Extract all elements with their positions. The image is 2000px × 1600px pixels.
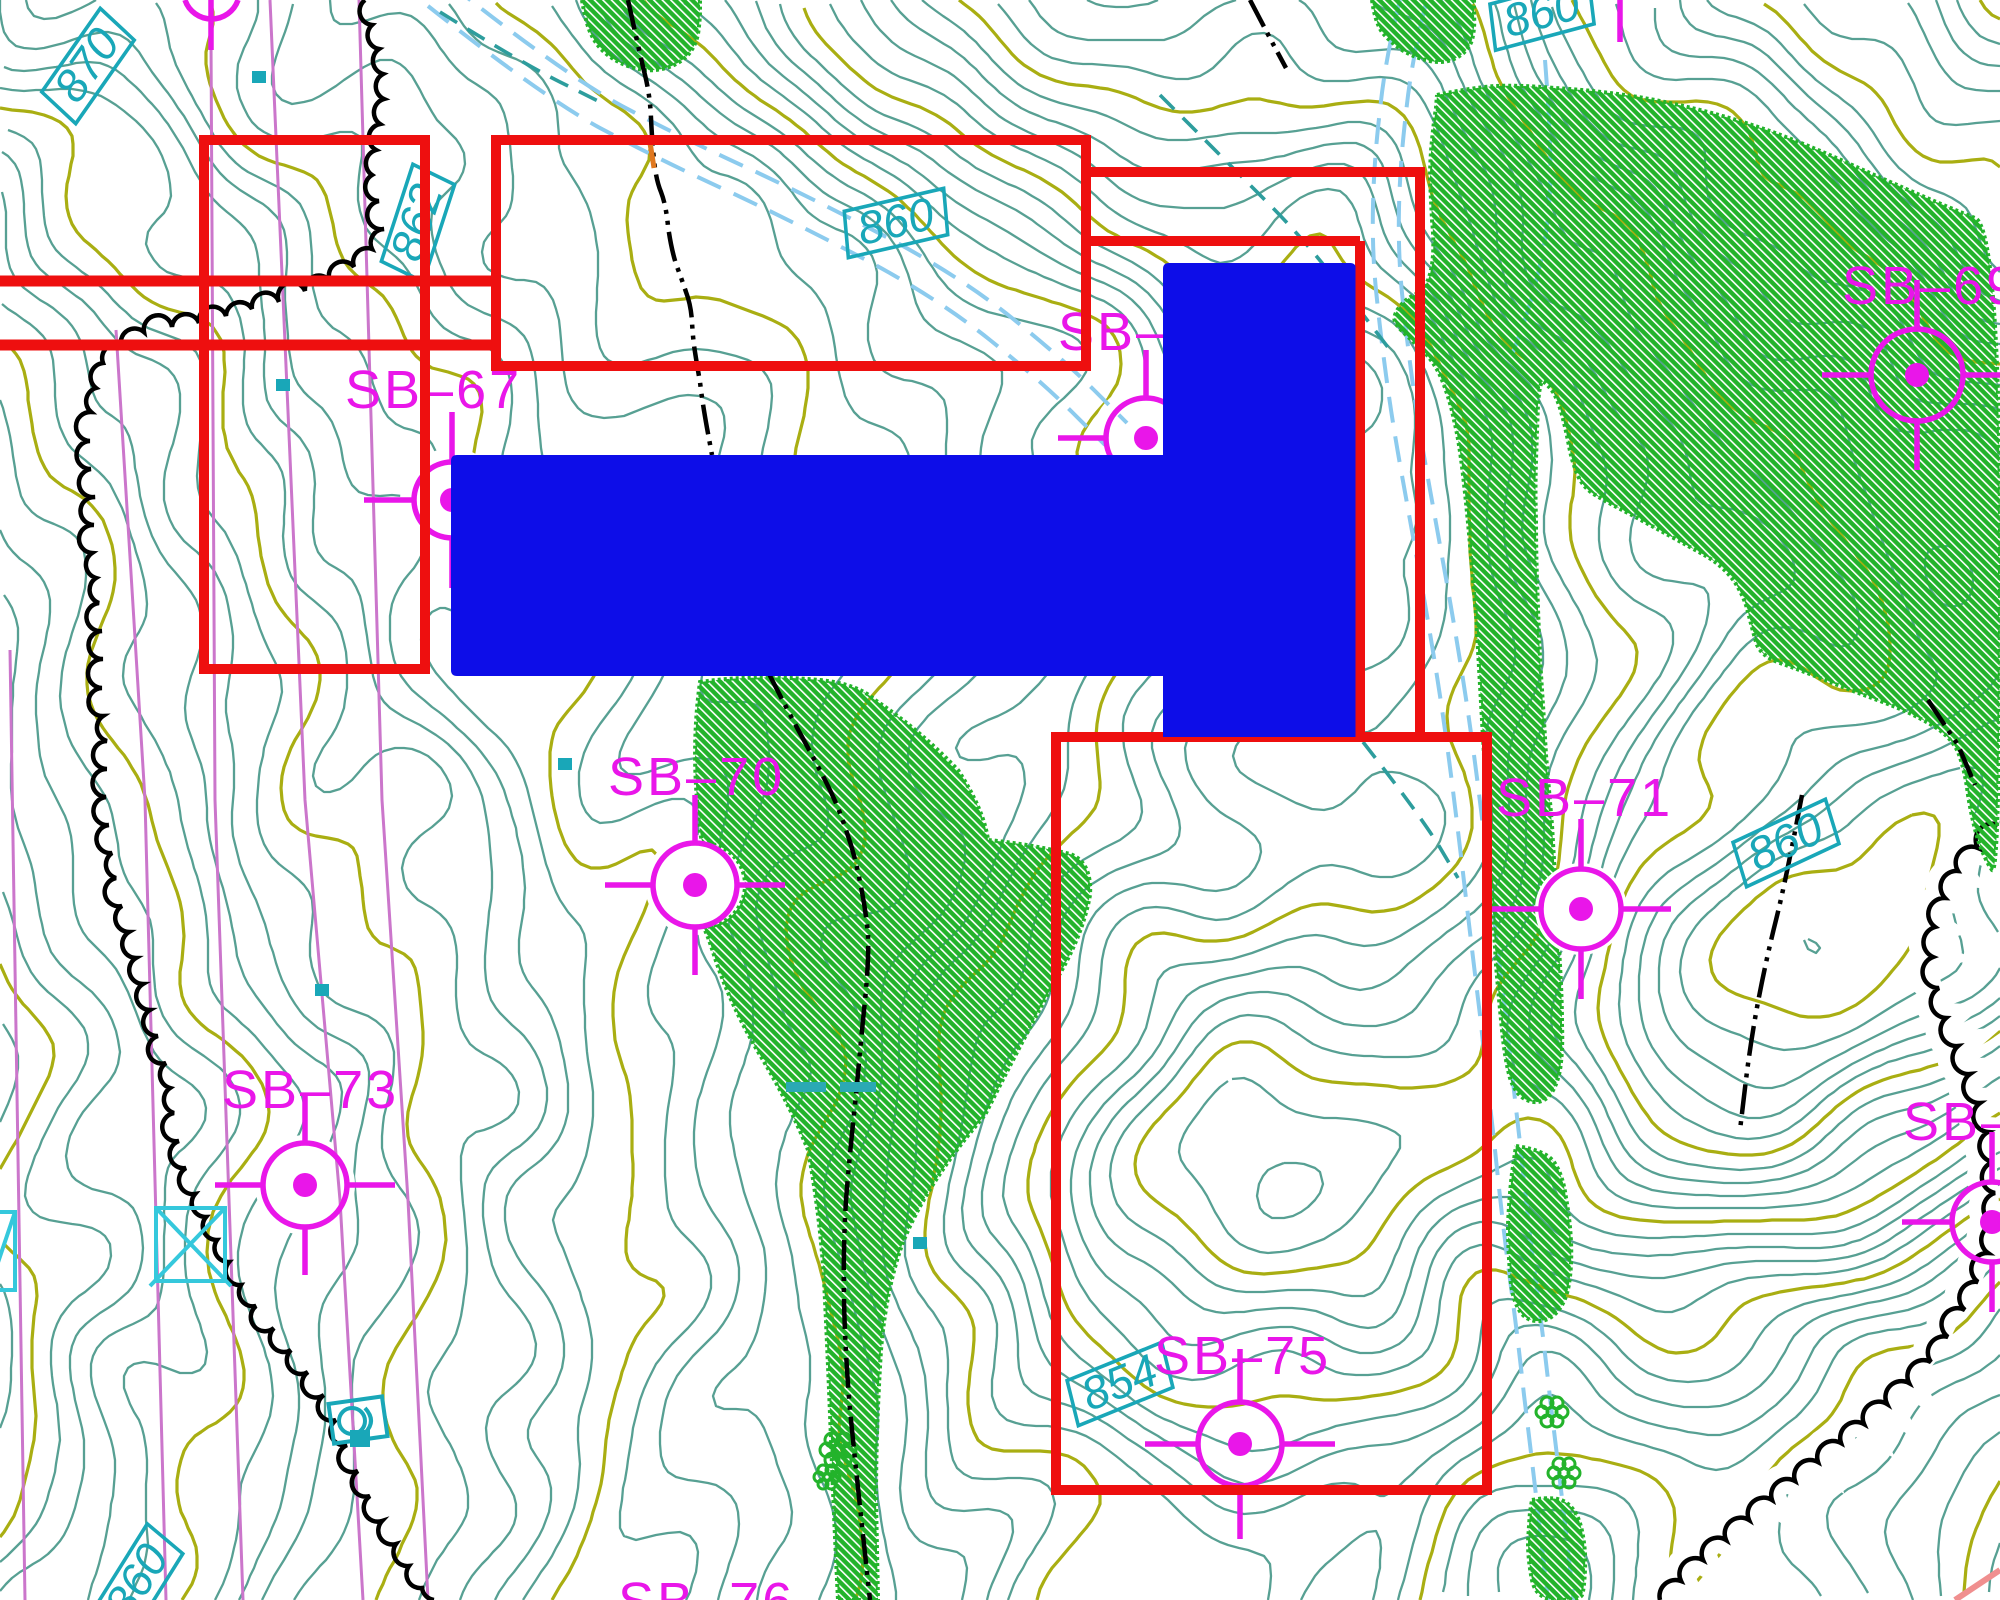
svg-text:SB–76: SB–76 — [618, 1572, 795, 1600]
svg-text:SB–: SB– — [1903, 1092, 2000, 1152]
svg-text:SB–70: SB–70 — [608, 747, 785, 807]
svg-text:SB–71: SB–71 — [1496, 768, 1673, 828]
svg-text:SB–73: SB–73 — [222, 1060, 399, 1120]
svg-text:SB–69: SB–69 — [1842, 256, 2000, 316]
svg-text:SB–75: SB–75 — [1154, 1326, 1331, 1386]
